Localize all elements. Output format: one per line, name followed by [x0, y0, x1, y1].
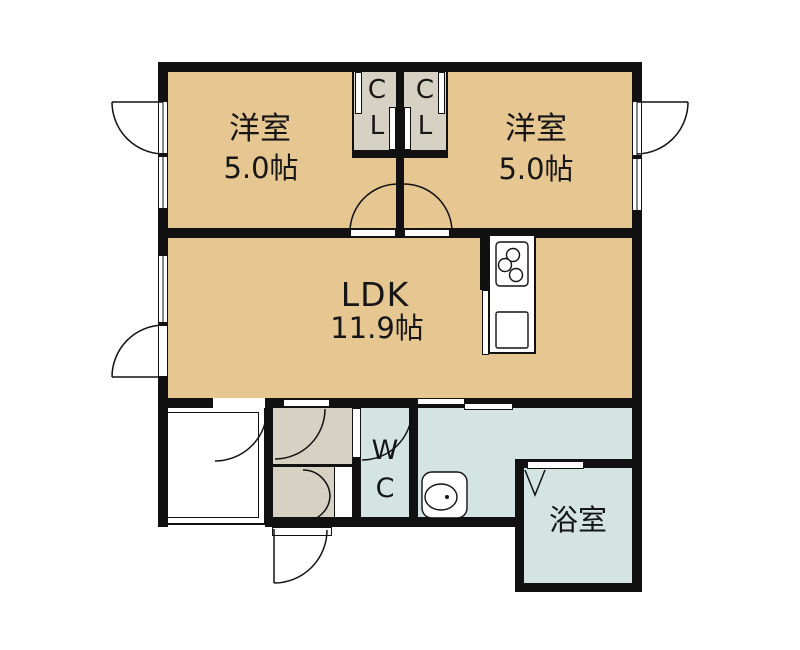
floor-plan: 洋室 5.0帖 洋室 5.0帖 LDK 11.9帖 C L C L W C 浴室 — [0, 0, 800, 650]
door-swing-ldk-left — [112, 325, 163, 377]
threshold-bedroom-left-door — [350, 229, 396, 237]
toilet-label: W C — [372, 432, 399, 508]
entrance-door-leaf — [274, 529, 327, 583]
window-right-1 — [632, 101, 642, 156]
threshold-ldk-hallway — [283, 399, 330, 407]
wall-bathroom-left — [515, 459, 524, 592]
bedroom-left-name: 洋室 — [229, 112, 291, 146]
sliding-door-washroom-b — [464, 403, 513, 410]
kitchen-wall-stub — [480, 232, 488, 290]
bedroom-right-size: 5.0帖 — [498, 154, 573, 186]
wall-bottom — [265, 517, 517, 527]
opening-toilet-door — [352, 408, 361, 458]
entrance-room-inner-line — [165, 412, 259, 518]
bedroom-right-name: 洋室 — [505, 112, 567, 146]
ldk-size: 11.9帖 — [330, 313, 424, 345]
kitchen-unit — [488, 234, 536, 354]
opening-ldk-entrance-room — [213, 398, 265, 408]
hallway-divider-line — [273, 464, 352, 467]
window-swing-right — [637, 102, 688, 154]
closet-left-slider-a — [355, 72, 362, 114]
window-swing-left — [112, 102, 163, 154]
hallway-step — [334, 466, 352, 517]
wall-closet-bottom — [352, 150, 448, 158]
window-right-2 — [632, 158, 642, 211]
closet-right-slider-b — [438, 72, 445, 114]
wall-entrance-right — [265, 398, 273, 527]
hallway-lower-floor — [273, 466, 334, 517]
wall-bathroom-bottom — [515, 583, 642, 592]
threshold-bedroom-right-door — [404, 229, 450, 237]
sliding-door-washroom-a — [417, 398, 465, 405]
closet-left-label: C L — [368, 72, 386, 144]
bathroom-label: 浴室 — [549, 505, 607, 537]
window-left-2 — [158, 156, 168, 209]
opening-bathroom-door — [527, 461, 584, 469]
closet-right-label: C L — [416, 72, 434, 144]
entrance-door-sill — [272, 527, 332, 536]
window-left-1 — [158, 101, 168, 154]
door-opening-left-ldk — [158, 325, 168, 377]
closet-left-slider-b — [389, 107, 396, 150]
ldk-name: LDK — [341, 277, 409, 313]
bedroom-left-size: 5.0帖 — [223, 153, 298, 185]
closet-right-slider-a — [404, 107, 411, 150]
hallway-upper-floor — [273, 403, 352, 466]
wall-toilet-right — [409, 398, 418, 527]
washroom-floor-left — [418, 408, 515, 517]
window-left-3 — [158, 255, 168, 323]
